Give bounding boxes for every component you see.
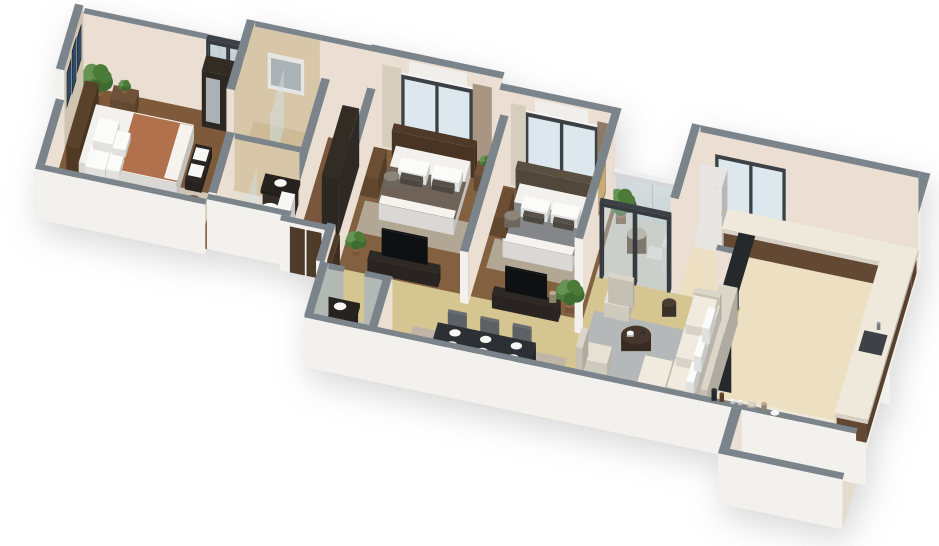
master-nightstand-pl1-leaf	[118, 82, 123, 87]
bedroom2-plant-pl0-leaf	[358, 235, 366, 243]
apartment-3d-floor-plan	[0, 0, 939, 546]
floor-plan-render	[0, 0, 939, 546]
living-coffee-table-cy0-top	[621, 326, 651, 345]
kitchen-bar-wall-cy5-top	[747, 401, 756, 407]
kitchen-bar-wall-cy1-top	[712, 388, 717, 391]
living-side-table	[662, 298, 676, 317]
kitchen-bar-wall-cy2-top	[720, 392, 724, 395]
bedroom2-tv-unit-b1-east	[427, 237, 428, 265]
living-armchair-north	[604, 272, 634, 322]
bedroom2-bedroom3-wall-b0-south	[460, 251, 468, 305]
kitchen-bar-wall-cy3-top	[730, 399, 734, 402]
balcony-doors-b3-south	[667, 220, 670, 293]
annex-west-wall-b0-south	[670, 197, 678, 294]
living-side-table-cy0-top	[662, 298, 676, 307]
kitchen-east-counter-cy3-top	[877, 322, 881, 324]
balcony-doors-b1-east	[603, 202, 604, 278]
bedroom2-desk-cy1-top	[384, 171, 400, 181]
bedroom3-desk-cy1-top	[504, 211, 520, 221]
living-sofa-b1-east	[720, 293, 722, 324]
master-nightstand-pl1-leaf	[122, 86, 127, 91]
toilet-vanity-el2	[274, 179, 286, 187]
corridor-south-wall-ps1	[290, 226, 305, 275]
living-coffee-table-el2	[640, 331, 645, 334]
living-armchair-north-b1-south	[608, 277, 633, 308]
dining-set-el7	[449, 329, 460, 336]
dining-set-el9	[511, 342, 522, 349]
bedroom3-plant-pl0-leaf	[573, 285, 584, 296]
balcony-doors-b1-south	[600, 206, 603, 279]
living-coffee-table	[621, 326, 651, 352]
balcony-doors-b3-east	[670, 217, 671, 293]
living-sofa-b9-south	[694, 356, 702, 373]
bedroom3-plant-pl0-leaf	[556, 284, 567, 295]
master-wardrobe-ps1	[206, 77, 220, 124]
kitchen-bar-wall-cy6-top	[762, 402, 767, 405]
dining-set-el8	[480, 336, 491, 343]
living-coffee-table-cy1-top	[627, 331, 634, 335]
bedroom3-tv-unit-b1-east	[547, 274, 548, 300]
living-sofa-b10-south	[702, 327, 710, 344]
master-plant-pl0-leaf	[99, 70, 112, 83]
bedroom3-plant-pl0-leaf	[564, 293, 576, 305]
kitchen-bar-wall-el7	[771, 410, 780, 416]
balcony-doors-b2-east	[636, 209, 637, 285]
bedroom2-nightstand-pl1-leaf	[480, 158, 485, 163]
bedroom2-plant-pl0-leaf	[346, 235, 354, 243]
living-armchair-north-b1-east	[633, 278, 634, 308]
master-nightstand-pl1-leaf	[126, 82, 131, 87]
bedroom2-plant-pl0-leaf	[351, 241, 360, 250]
balcony-doors-b2-south	[633, 213, 636, 286]
kitchen-bar-wall-cy4-top	[738, 400, 742, 403]
guest-bath-vanity-el2	[334, 302, 346, 310]
bedroom3-tv-unit-cy2-top	[549, 291, 556, 295]
